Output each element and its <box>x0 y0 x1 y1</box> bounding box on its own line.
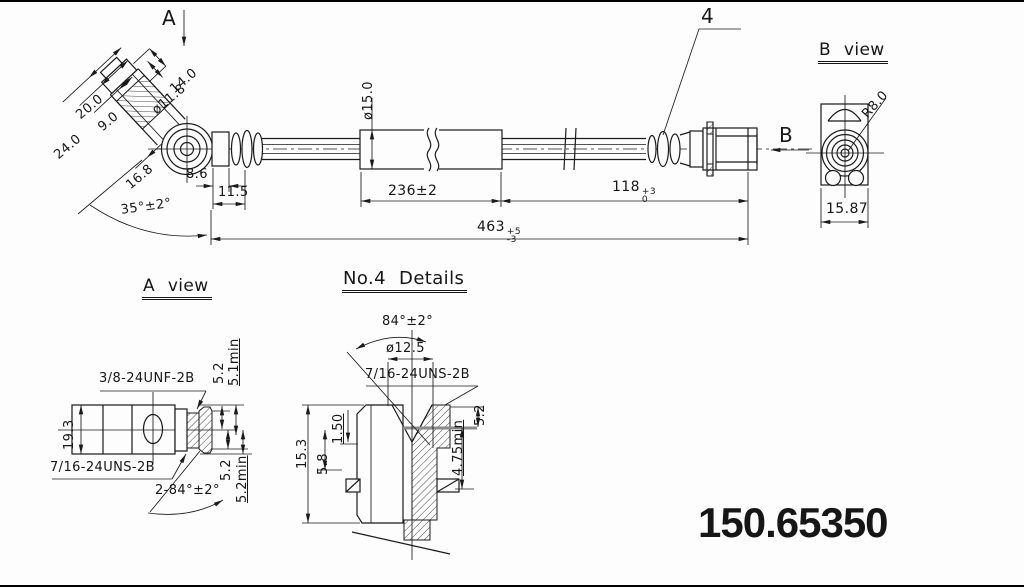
tol-minus: 0 <box>642 196 656 204</box>
b-view-title: B view <box>818 42 888 64</box>
main-assembly-drawing <box>63 10 816 245</box>
a-view-drawing <box>52 391 252 514</box>
dim-sleeve-len: 236±2 <box>388 184 437 198</box>
dim-end-len: 11.5 <box>218 186 249 199</box>
direction-b-label: B <box>779 125 793 145</box>
dim-length-118: 118+30 <box>612 180 656 204</box>
dim-length-463: 463+5-3 <box>477 220 521 244</box>
tol-minus: -3 <box>507 236 521 244</box>
dim-collar-len: 8.6 <box>186 168 208 181</box>
section-a-label: A <box>162 8 176 28</box>
dim-top-52: 5.2 <box>213 362 226 384</box>
dim-body-height: 15.3 <box>296 438 309 469</box>
dim-flare-angle: 84°±2° <box>382 315 433 328</box>
dim-thread-bottom: 7/16-24UNS-2B <box>50 461 155 474</box>
dim-depth-58: 5.8 <box>317 453 330 475</box>
dim-height-193: 19.3 <box>63 419 76 450</box>
dim-thread-min: 4.75min <box>452 420 465 476</box>
dim-lip-150: 1.50 <box>332 413 345 444</box>
detail-4-callout-label: 4 <box>701 6 714 26</box>
dim-width-1587: 15.87 <box>826 202 868 216</box>
dim-top-51min: 5.1min <box>228 338 241 386</box>
end-fitting <box>690 122 757 176</box>
a-view-title: A view <box>142 278 212 300</box>
dim-bore-dia: ø12.5 <box>386 342 425 355</box>
dim-chamfer-angle: 2-84°±2° <box>155 484 220 497</box>
dim-seat-52: 5.2 <box>474 404 487 426</box>
no4-details-title: No.4 Details <box>342 270 467 293</box>
drawing-canvas: A 4 B 14.0 ø11.8 20.0 9.0 24.0 16.8 8.6 … <box>0 0 1024 587</box>
dim-bot-52: 5.2 <box>220 459 233 481</box>
dim-thread-top: 3/8-24UNF-2B <box>99 372 195 385</box>
dim-sleeve-dia: ø15.0 <box>362 81 375 120</box>
dim-bot-52min: 5.2min <box>236 455 249 503</box>
hose-left-end <box>212 131 263 168</box>
part-number: 150.65350 <box>698 502 888 544</box>
hose-sleeve <box>360 128 502 171</box>
dim-no4-thread: 7/16-24UNS-2B <box>365 368 470 381</box>
